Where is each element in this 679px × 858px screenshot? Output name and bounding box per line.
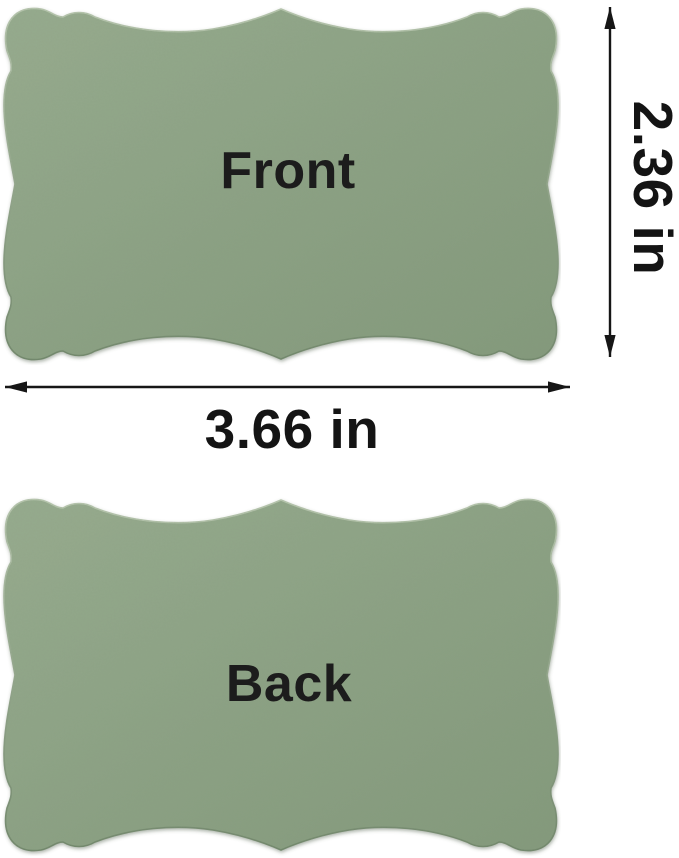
width-dimension-label: 3.66 in bbox=[205, 397, 380, 461]
height-dimension-label: 2.36 in bbox=[621, 101, 679, 276]
back-card-label: Back bbox=[226, 654, 352, 714]
front-card-label: Front bbox=[220, 141, 355, 201]
product-dimension-image: Front Back 2.36 in 3.66 in bbox=[0, 0, 679, 858]
